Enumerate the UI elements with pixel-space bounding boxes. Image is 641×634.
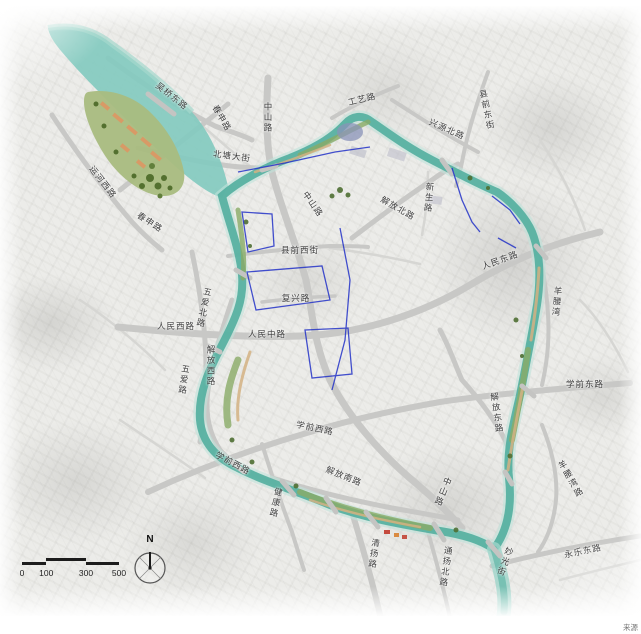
map-page: 吴桥东路春申路中山路北塘大街工艺路兴源北路县前东街运河西路春申路五爱北路五爱路人…	[0, 0, 641, 634]
road-label: 新生路	[422, 182, 437, 214]
scale-tick: 100	[39, 568, 53, 578]
road-label: 学前西路	[295, 418, 335, 438]
road-label: 学前西路	[213, 449, 252, 477]
road-label: 春申路	[210, 103, 235, 134]
road-labels: 吴桥东路春申路中山路北塘大街工艺路兴源北路县前东街运河西路春申路五爱北路五爱路人…	[0, 6, 641, 616]
road-label: 中山路	[300, 189, 326, 219]
road-label: 县前东街	[477, 88, 497, 132]
scale-bar-ticks: 0 100 300 500	[22, 568, 119, 578]
road-label: 工艺路	[347, 90, 378, 109]
road-label: 人民东路	[480, 248, 520, 272]
road-label: 兴源北路	[427, 116, 467, 142]
scale-tick: 300	[79, 568, 93, 578]
scale-bar-segments	[22, 558, 119, 565]
scale-tick: 0	[20, 568, 25, 578]
road-label: 解放西路	[205, 345, 217, 387]
road-label: 解放北路	[379, 193, 418, 222]
road-label: 解放东路	[488, 391, 506, 434]
road-label: 健康路	[267, 486, 285, 519]
road-label: 永乐东路	[563, 541, 603, 561]
road-label: 羊腰湾	[550, 286, 565, 318]
scale-bar: 0 100 300 500	[22, 552, 122, 578]
scale-tick: 500	[112, 568, 126, 578]
road-label: 春申路	[135, 209, 165, 235]
road-label: 中山路	[262, 102, 274, 134]
road-label: 解放南路	[324, 463, 364, 488]
road-label: 妙光街	[494, 545, 516, 579]
compass-rose: N	[128, 534, 172, 590]
road-label: 吴桥东路	[153, 80, 190, 113]
road-label: 通扬北路	[437, 545, 455, 588]
road-label: 运河西路	[87, 163, 120, 200]
road-label: 人民中路	[248, 328, 286, 340]
road-label: 羊腰湾路	[555, 458, 586, 500]
aerial-map: 吴桥东路春申路中山路北塘大街工艺路兴源北路县前东街运河西路春申路五爱北路五爱路人…	[0, 6, 641, 616]
corner-watermark: 来源	[623, 622, 638, 633]
road-label: 五爱路	[176, 364, 192, 397]
road-label: 清扬路	[366, 538, 382, 571]
road-label: 北塘大街	[212, 147, 251, 164]
road-label: 人民西路	[157, 320, 195, 332]
road-label: 中山路	[432, 475, 455, 509]
road-label: 县前西街	[281, 244, 319, 256]
road-label: 五爱北路	[194, 286, 214, 330]
road-label: 学前东路	[566, 378, 604, 390]
compass-icon	[128, 546, 172, 590]
road-label: 复兴路	[282, 292, 311, 304]
compass-north-label: N	[146, 534, 153, 545]
